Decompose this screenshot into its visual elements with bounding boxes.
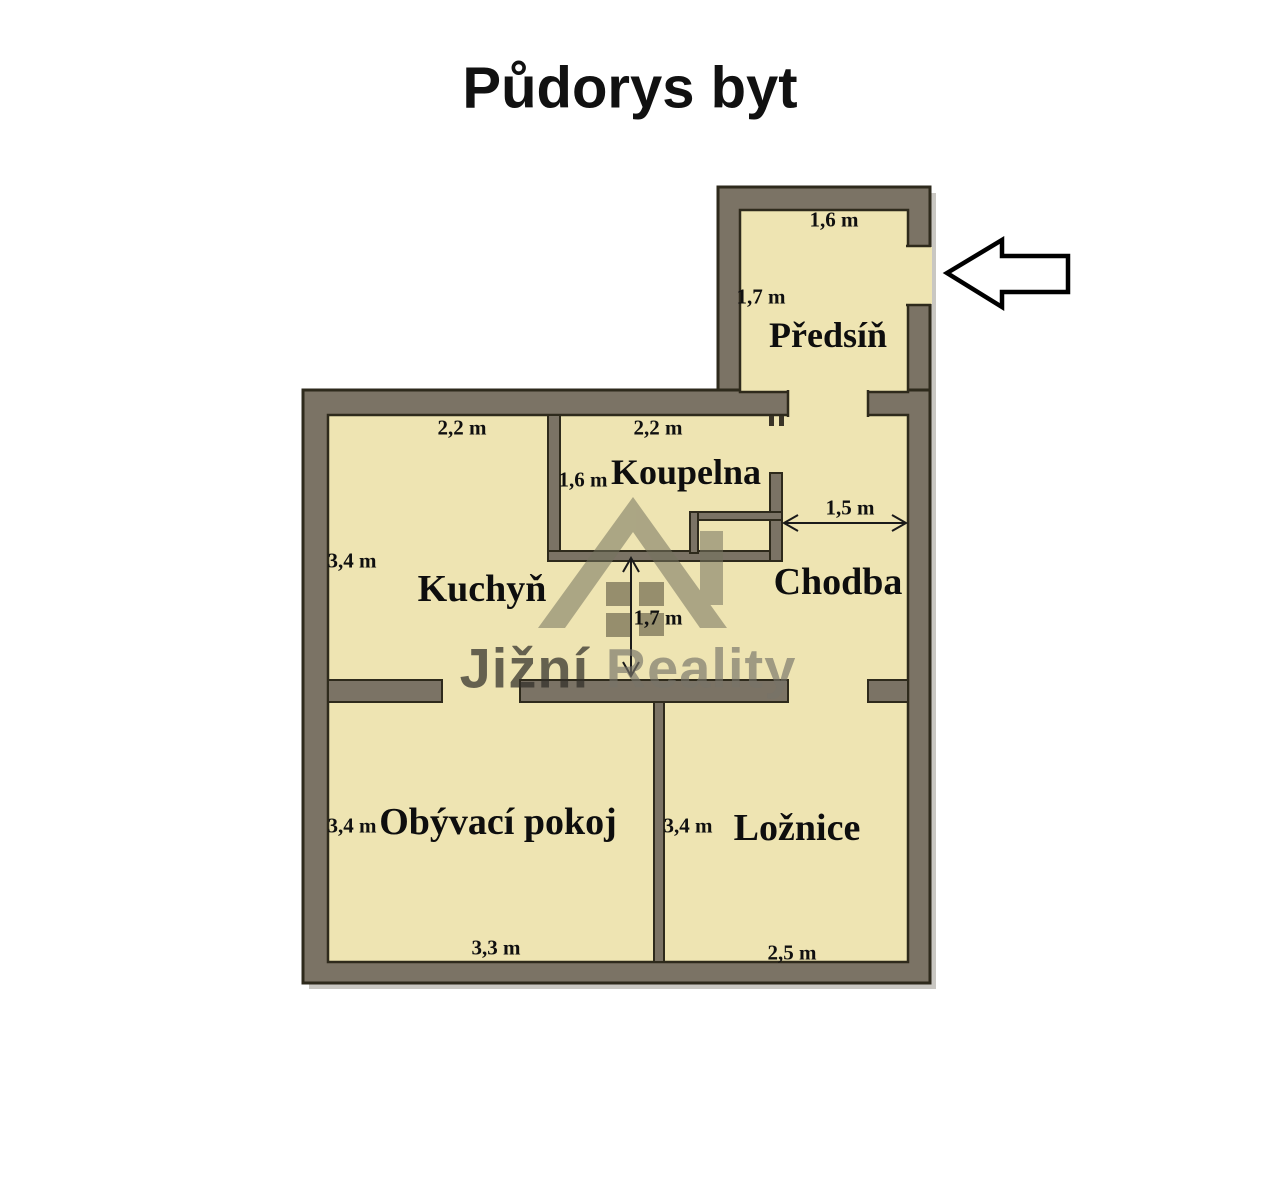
floor-plan-canvas bbox=[0, 0, 1275, 1200]
watermark-brand-part1: Jižní bbox=[460, 637, 589, 700]
dim-label-kuchyn-height: 3,4 m bbox=[328, 549, 377, 574]
wall-shower-top bbox=[690, 512, 782, 520]
room-label-predsin: Předsíň bbox=[769, 314, 887, 356]
room-label-koupelna: Koupelna bbox=[611, 451, 761, 493]
wall-mid-right-stub bbox=[868, 680, 908, 702]
watermark-brand: Jižní Reality bbox=[460, 636, 797, 701]
wall-mid-left-segment bbox=[328, 680, 442, 702]
watermark-brand-part2: Reality bbox=[606, 637, 797, 700]
room-label-chodba: Chodba bbox=[774, 560, 903, 604]
room-label-obyvaci-pokoj: Obývací pokoj bbox=[379, 800, 617, 844]
dim-label-loznice-height: 3,4 m bbox=[664, 814, 713, 839]
dim-label-koupelna-height: 1,6 m bbox=[559, 468, 608, 493]
door-opening-predsin-chodba bbox=[788, 388, 868, 418]
entrance-arrow-icon bbox=[947, 240, 1068, 307]
wall-obyvaci-loznice bbox=[654, 702, 664, 962]
wall-shower-left bbox=[690, 512, 698, 553]
dim-label-chodba-width: 1,5 m bbox=[826, 496, 875, 521]
dim-label-obyvaci-width: 3,3 m bbox=[472, 936, 521, 961]
floor-plan-page: Půdorys byt bbox=[0, 0, 1275, 1200]
entrance-door-opening bbox=[906, 247, 932, 304]
room-label-loznice: Ložnice bbox=[734, 806, 861, 850]
chimney-shape bbox=[700, 531, 723, 605]
dim-label-kuchyn-width: 2,2 m bbox=[438, 416, 487, 441]
dim-label-predsin-height: 1,7 m bbox=[737, 285, 786, 310]
dim-label-passage-height: 1,7 m bbox=[634, 606, 683, 631]
room-label-kuchyn: Kuchyň bbox=[418, 567, 547, 611]
dim-label-obyvaci-height: 3,4 m bbox=[328, 814, 377, 839]
dim-label-predsin-width: 1,6 m bbox=[810, 208, 859, 233]
dim-label-loznice-width: 2,5 m bbox=[768, 941, 817, 966]
dim-label-koupelna-width: 2,2 m bbox=[634, 416, 683, 441]
